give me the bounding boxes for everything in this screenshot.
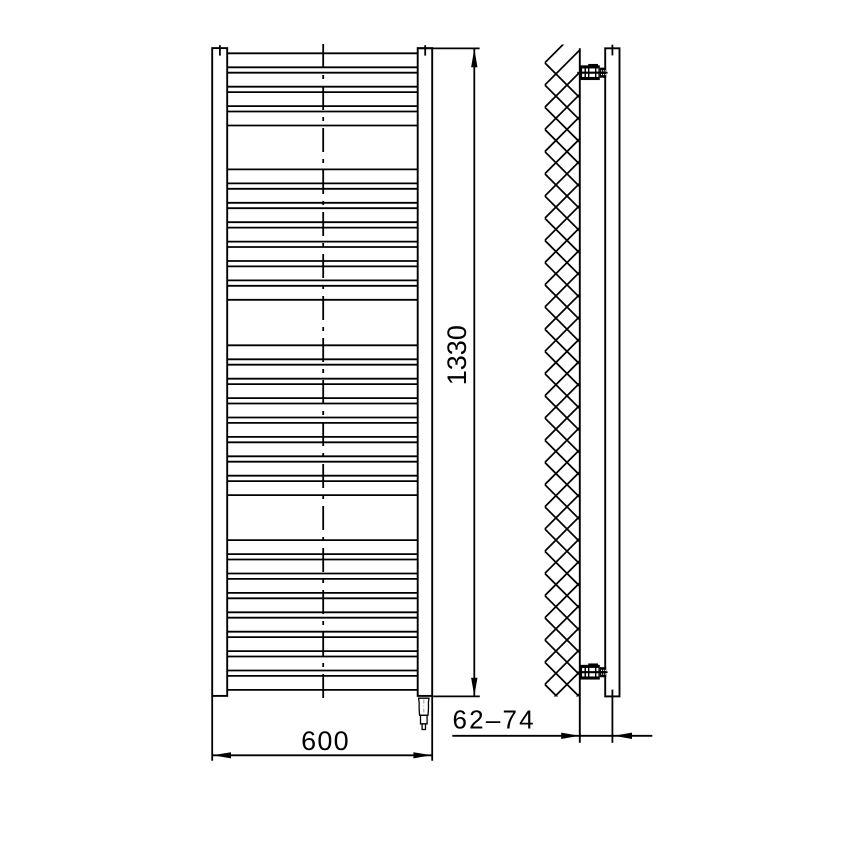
svg-text:1330: 1330 [442,325,472,385]
svg-text:600: 600 [301,726,350,756]
svg-text:62–74: 62–74 [453,704,536,734]
